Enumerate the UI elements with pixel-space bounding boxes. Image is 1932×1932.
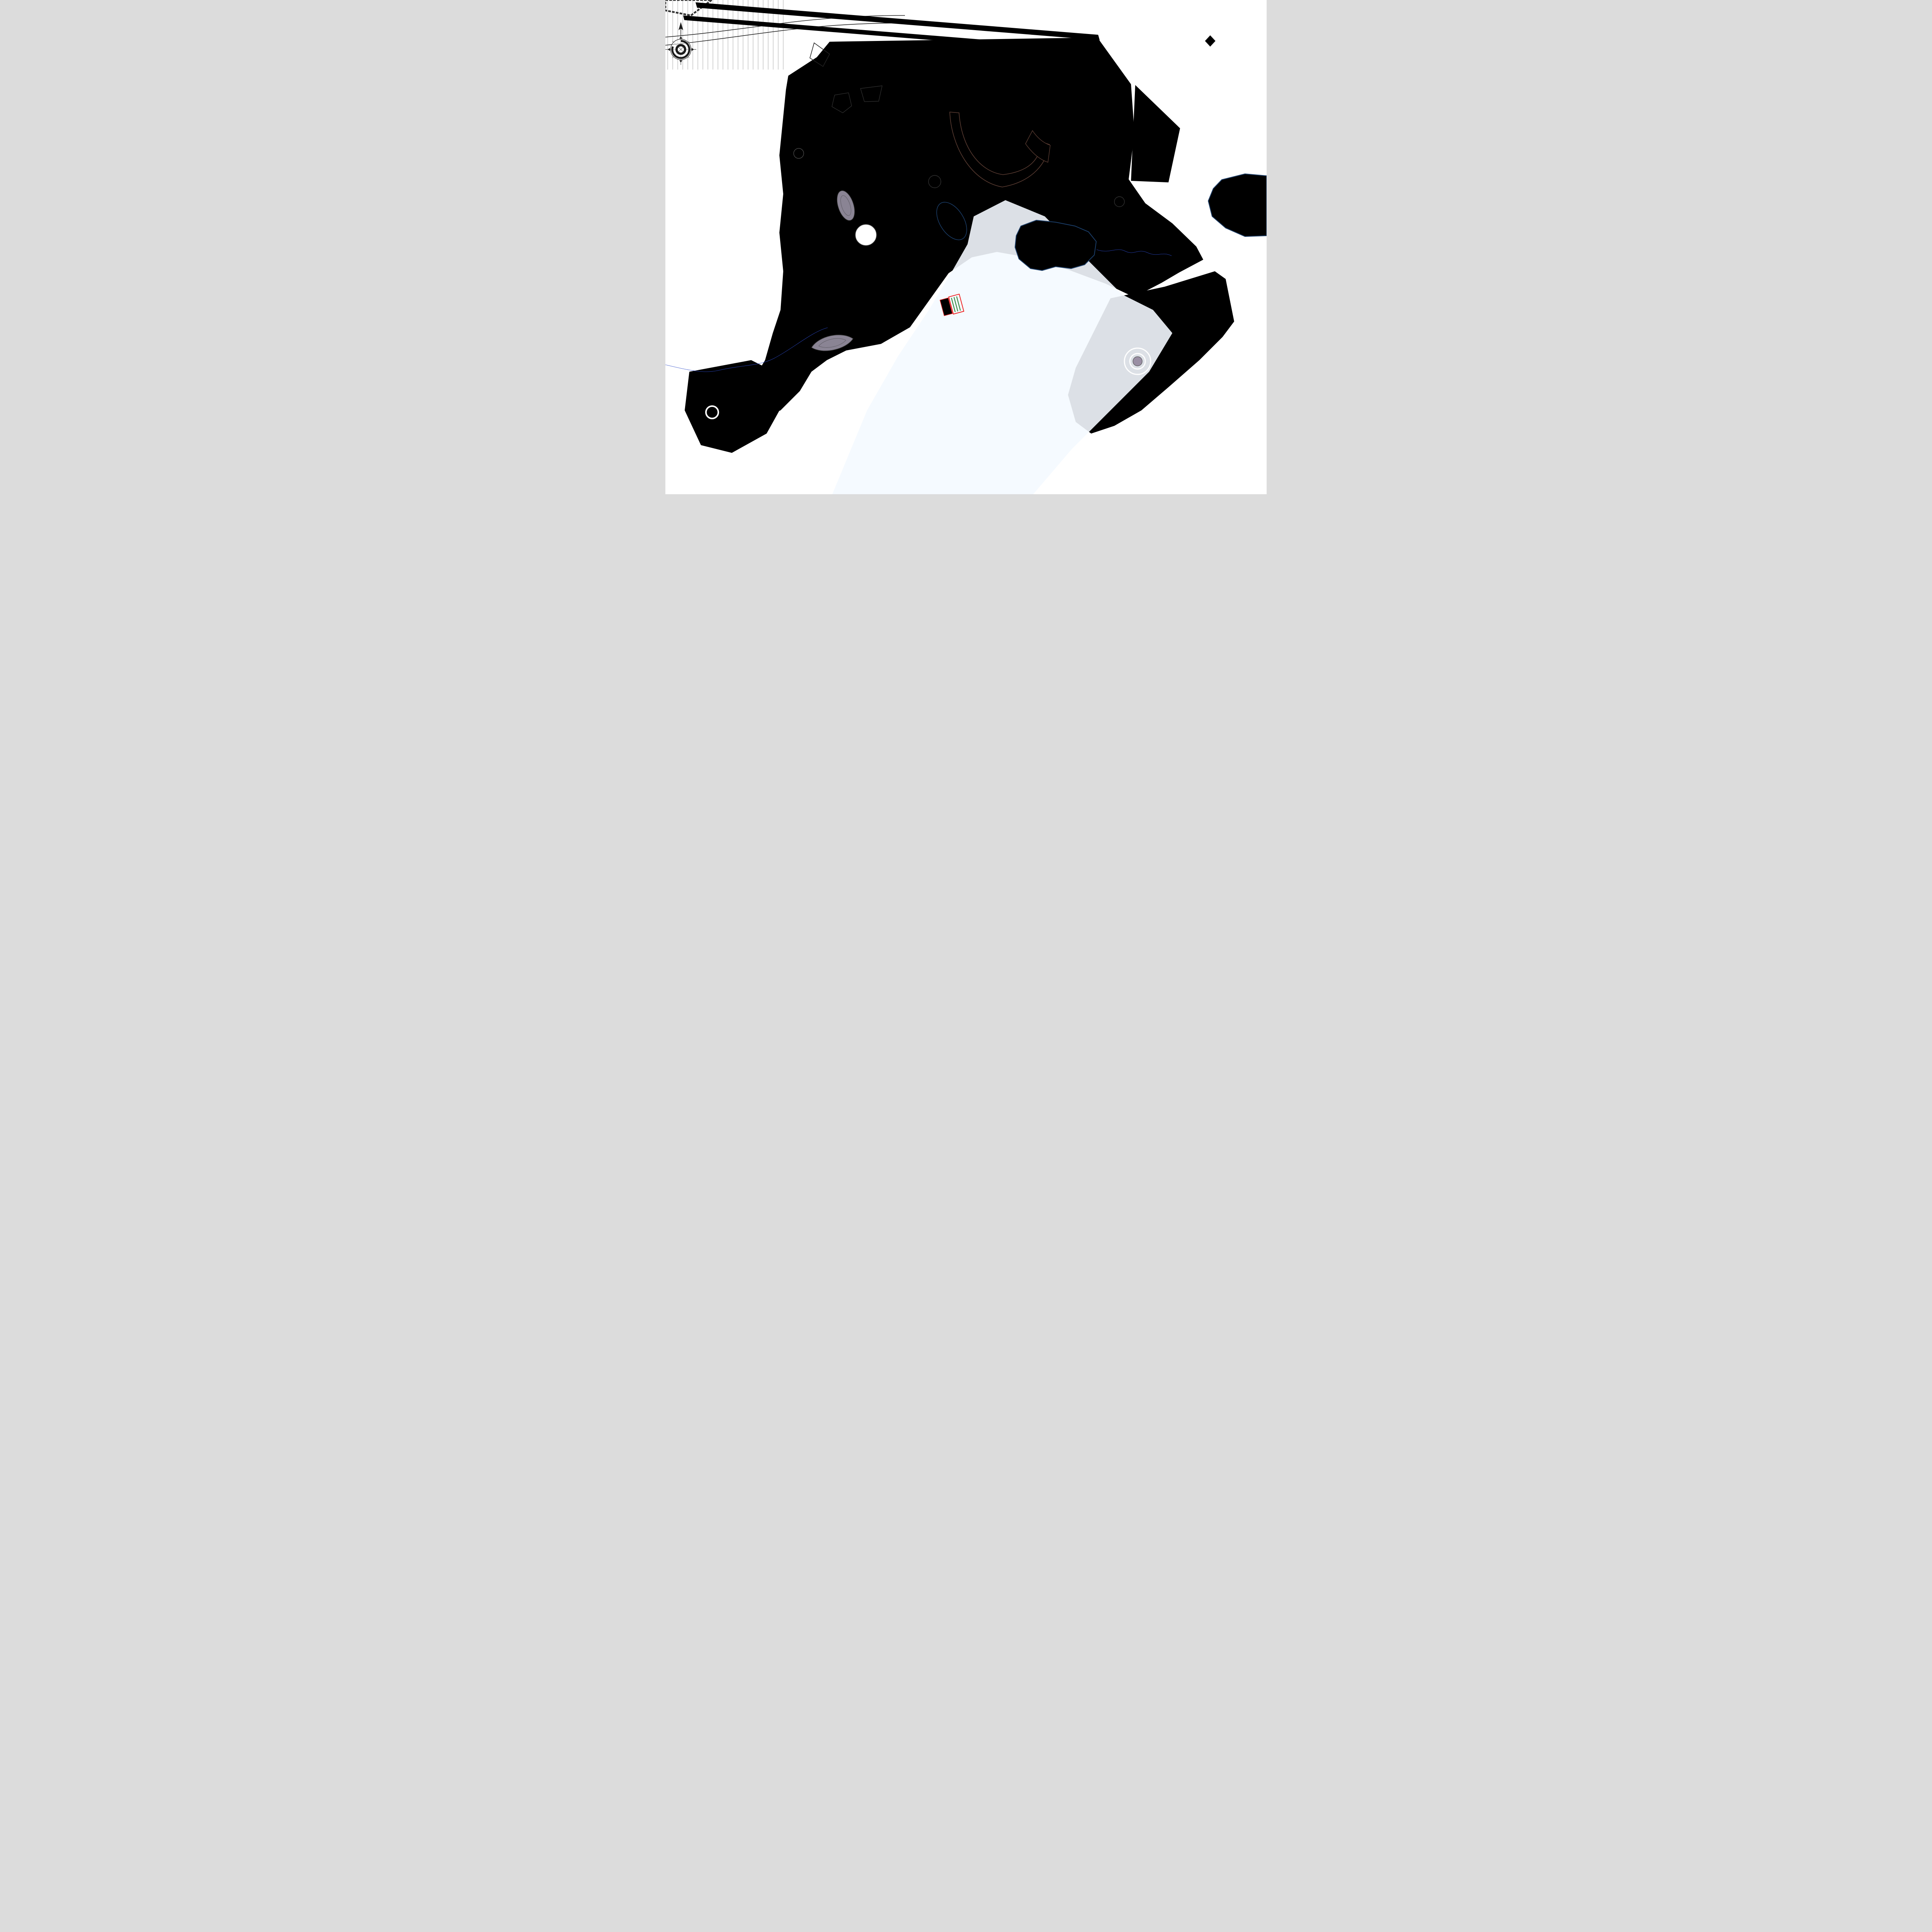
- masterplan-map: [665, 0, 1267, 494]
- plaza-10: [929, 175, 941, 188]
- map-canvas[interactable]: [665, 0, 1267, 494]
- plaza-18: [1114, 197, 1124, 207]
- enclave-roundabout: [706, 406, 718, 418]
- cluster-plaza: [794, 148, 804, 158]
- plaza-14: [855, 224, 876, 245]
- lot-01-center: [1133, 357, 1142, 366]
- apartment-10: [861, 86, 882, 102]
